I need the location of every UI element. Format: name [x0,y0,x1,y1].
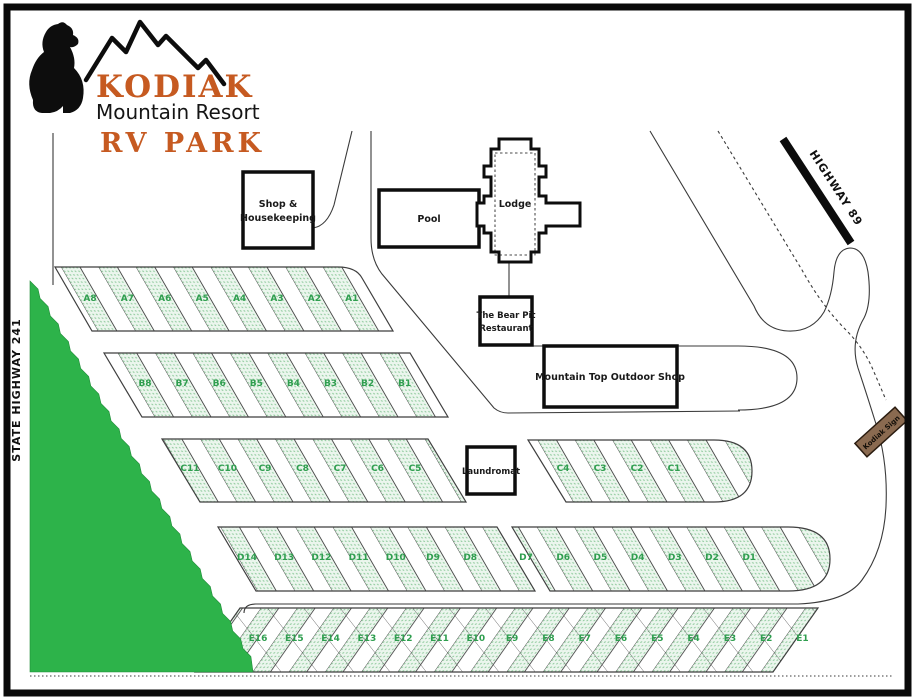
site-label-E9: E9 [506,634,518,644]
bear-pit-restaurant-building [480,297,532,345]
site-label-E1: E1 [796,634,808,644]
site-label-C8: C8 [296,464,309,474]
site-label-A5: A5 [196,294,209,304]
site-label-C10: C10 [218,464,237,474]
site-label-C11: C11 [180,464,199,474]
site-label-D7: D7 [519,553,533,563]
site-label-E13: E13 [358,634,377,644]
site-label-A2: A2 [308,294,321,304]
site-label-C9: C9 [259,464,272,474]
park-map-canvas: HIGHWAY 89 STATE HIGHWAY 241 Kodiak Sign… [0,0,915,700]
site-label-A1: A1 [345,294,358,304]
site-row-d-left [218,527,535,591]
site-label-A8: A8 [83,294,96,304]
laundromat-label: Laundromat [462,467,520,477]
site-label-B8: B8 [138,379,151,389]
site-label-E7: E7 [578,634,590,644]
site-label-D2: D2 [705,553,719,563]
site-label-D11: D11 [349,553,369,563]
site-label-E14: E14 [321,634,340,644]
site-label-E16: E16 [249,634,268,644]
restaurant-label-line1: The Bear Pit [477,311,536,321]
site-label-E3: E3 [724,634,736,644]
park-map: HIGHWAY 89 STATE HIGHWAY 241 Kodiak Sign… [0,0,915,700]
site-label-D9: D9 [426,553,440,563]
site-row-b [104,353,448,417]
logo-subtitle: Mountain Resort [96,100,260,124]
site-label-E6: E6 [615,634,627,644]
restaurant-label-line2: Restaurant [479,324,532,334]
site-label-D13: D13 [274,553,294,563]
site-label-D3: D3 [668,553,682,563]
site-label-B5: B5 [250,379,263,389]
site-label-D10: D10 [386,553,406,563]
site-label-C7: C7 [334,464,347,474]
site-label-D14: D14 [237,553,257,563]
pool-label: Pool [417,214,440,225]
state-highway-241-label: STATE HIGHWAY 241 [10,318,23,461]
site-label-E15: E15 [285,634,304,644]
site-label-E12: E12 [394,634,413,644]
site-label-C5: C5 [409,464,422,474]
site-label-E11: E11 [430,634,449,644]
site-label-E2: E2 [760,634,772,644]
site-label-E8: E8 [542,634,554,644]
site-label-C6: C6 [371,464,384,474]
site-label-D1: D1 [742,553,756,563]
site-label-A6: A6 [158,294,171,304]
site-label-A4: A4 [233,294,246,304]
site-label-B3: B3 [324,379,337,389]
site-label-B4: B4 [287,379,300,389]
site-label-E4: E4 [687,634,699,644]
lodge-label: Lodge [499,199,532,210]
site-label-A3: A3 [270,294,283,304]
shop-label-line1: Shop & [259,199,298,210]
outdoor-shop-label: Mountain Top Outdoor Shop [535,372,685,383]
logo-rv-park: RV PARK [100,128,265,159]
site-label-C4: C4 [557,464,570,474]
site-label-B6: B6 [213,379,226,389]
shop-housekeeping-building [243,172,313,248]
site-label-E10: E10 [466,634,485,644]
site-label-D5: D5 [594,553,608,563]
shop-label-line2: Housekeeping [240,213,316,224]
site-label-C1: C1 [668,464,681,474]
site-row-a [55,267,393,331]
site-label-B7: B7 [176,379,189,389]
site-label-C2: C2 [631,464,644,474]
site-label-D6: D6 [556,553,570,563]
site-label-A7: A7 [121,294,134,304]
site-label-C3: C3 [594,464,607,474]
site-label-E5: E5 [651,634,663,644]
site-label-D12: D12 [311,553,331,563]
site-label-B2: B2 [361,379,374,389]
site-label-D8: D8 [463,553,477,563]
site-label-B1: B1 [398,379,411,389]
site-label-D4: D4 [631,553,645,563]
